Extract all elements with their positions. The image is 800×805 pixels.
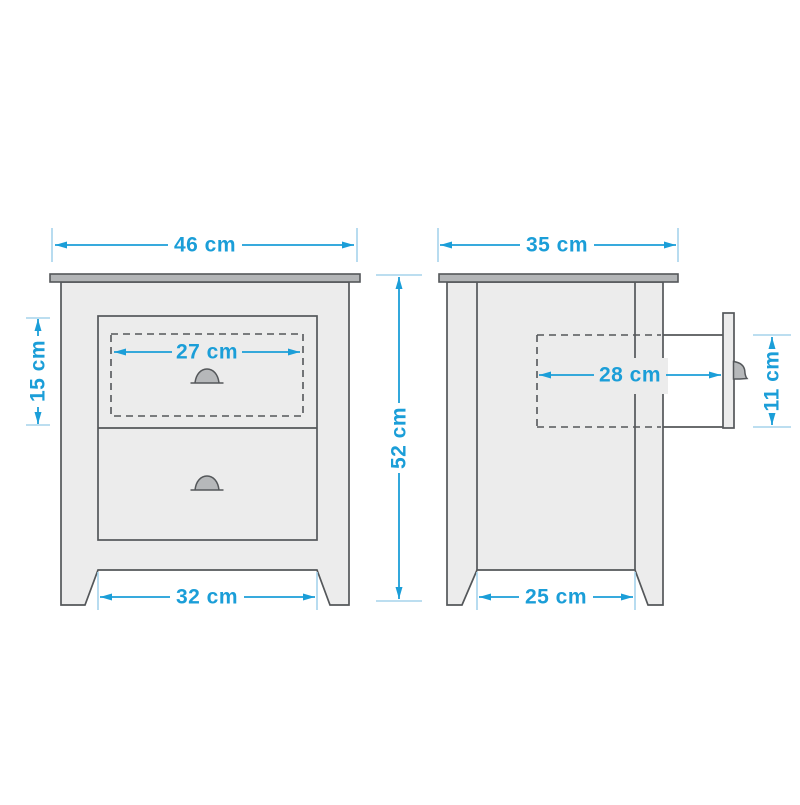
dimension-label-top-width: 46 cm	[174, 234, 236, 257]
dimension-label-drawer-height: 15 cm	[27, 340, 50, 402]
side-top-panel	[439, 274, 678, 282]
dimension-label-overall-height: 52 cm	[388, 407, 411, 469]
diagram-canvas: 46 cm 27 cm 15 cm 52 cm 32 cm 35 cm	[0, 0, 800, 800]
dimension-side-base-depth: 25 cm	[477, 572, 635, 610]
dimension-label-drawer-depth: 28 cm	[599, 364, 661, 387]
front-view	[50, 274, 360, 605]
side-drawer-front-panel	[723, 313, 734, 428]
front-top-panel	[50, 274, 360, 282]
dimension-side-top-depth: 35 cm	[438, 228, 678, 262]
dimension-front-base-width: 32 cm	[98, 572, 317, 610]
dimension-label-drawer-width: 27 cm	[176, 341, 238, 364]
dimension-label-top-depth: 35 cm	[526, 234, 588, 257]
dimension-label-drawer-side-height: 11 cm	[761, 351, 784, 412]
front-body	[61, 282, 349, 605]
side-view	[439, 274, 747, 605]
side-drawer-handle-icon	[734, 362, 748, 380]
dimension-diagram: 46 cm 27 cm 15 cm 52 cm 32 cm 35 cm	[0, 0, 800, 800]
side-body	[447, 282, 663, 605]
dimension-overall-height: 52 cm	[376, 275, 422, 601]
dimension-label-base-width: 32 cm	[176, 586, 238, 609]
dimension-label-base-depth: 25 cm	[525, 586, 587, 609]
dimension-side-drawer-height: 11 cm	[753, 335, 791, 427]
dimension-front-top-width: 46 cm	[52, 228, 357, 262]
dimension-front-drawer-height: 15 cm	[26, 318, 50, 425]
